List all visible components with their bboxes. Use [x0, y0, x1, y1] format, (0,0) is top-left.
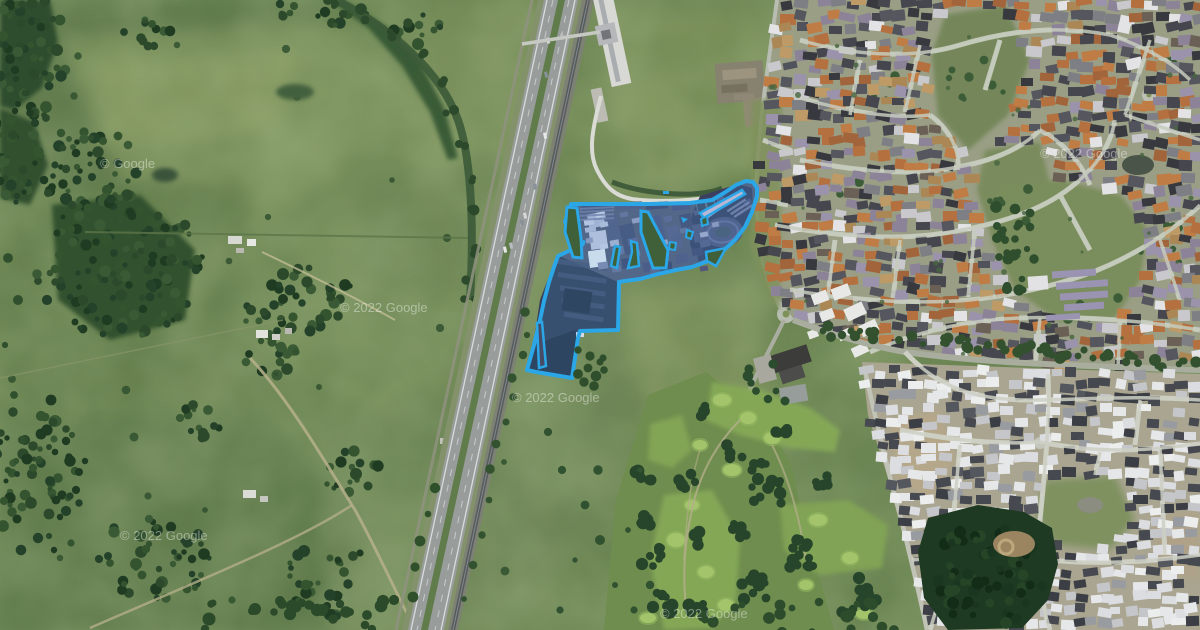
svg-text:© Google: © Google	[100, 156, 155, 171]
svg-text:© 2022 Google: © 2022 Google	[1040, 146, 1128, 161]
svg-text:© 2022 Google: © 2022 Google	[340, 300, 428, 315]
svg-text:© 2022 Google: © 2022 Google	[512, 390, 600, 405]
svg-text:© 2022 Google: © 2022 Google	[120, 528, 208, 543]
svg-text:© 2022 Google: © 2022 Google	[660, 606, 748, 621]
